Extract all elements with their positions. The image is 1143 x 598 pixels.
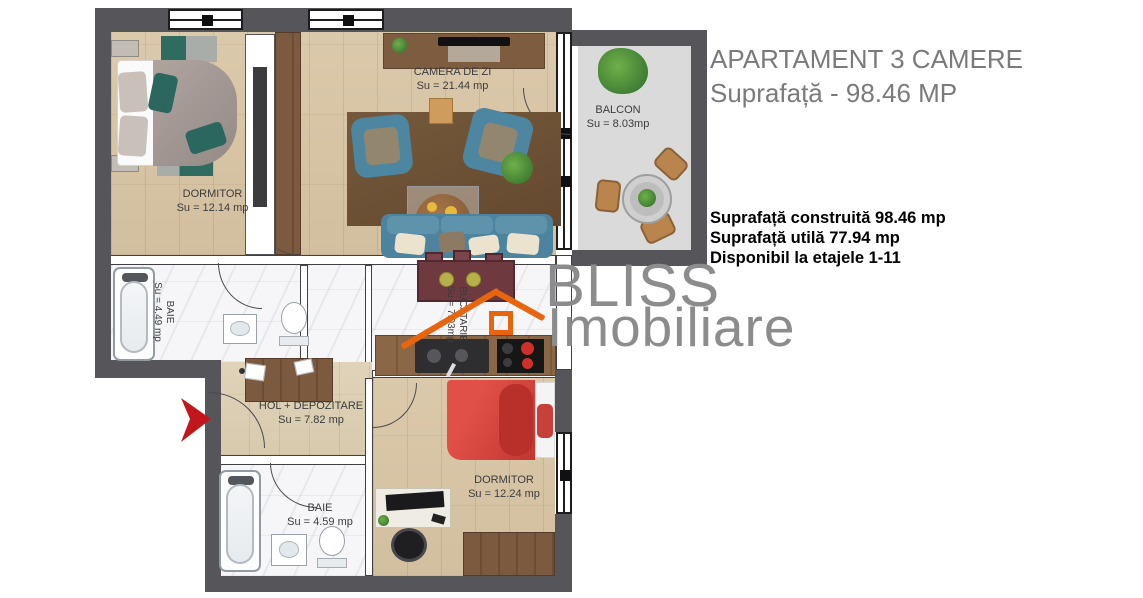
toilet-bowl [281,302,307,334]
listing-subtitle: Suprafață - 98.46 MP [710,76,1023,110]
paper [244,363,266,382]
room-area: Su = 12.24 mp [445,488,563,502]
wall-balcony-right [691,30,707,266]
tub-inner [226,484,254,564]
plant-on-table [638,189,656,207]
window-sash [202,15,213,26]
room-area: Su = 21.44 mp [395,80,510,94]
plant-small [392,38,407,53]
tv-stand [448,46,500,62]
listing-title: APARTAMENT 3 CAMERE [710,42,1023,76]
room-name: CAMERA DE ZI [395,66,510,80]
armchair-cushion [363,126,401,165]
room-label-dormitor2: DORMITOR Su = 12.24 mp [445,474,563,501]
wardrobe-bedroom2 [463,532,555,576]
window-bedroom1 [168,9,243,30]
burner [521,342,534,355]
room-area: Su = 8.03mp [563,118,673,132]
bathtub [113,267,155,361]
wall-right-lower-b [555,514,572,592]
wall-left [95,8,111,378]
room-area: Su = 7.82 mp [247,414,375,428]
bathroom-sink [223,314,257,344]
room-name: HOL + DEPOZITARE [247,400,375,414]
balcony-chair [594,179,621,213]
window-living [308,9,384,30]
window-sash [343,15,354,26]
room-name: BAIE [265,502,375,516]
room-area: Su = 4.59 mp [265,516,375,530]
rug-mat [161,36,217,62]
tv-console [383,33,545,69]
sink-basin [230,321,249,336]
wardrobe-clothes [253,67,267,207]
wall-balcony-top [572,30,707,46]
toilet-tank [317,558,347,568]
room-label-balcon: BALCON Su = 8.03mp [563,104,673,131]
sink-bowl [427,349,441,363]
side-table [429,98,453,124]
entrance-arrow [179,396,213,444]
toilet-bowl [319,526,345,556]
plant-desk [378,515,389,526]
listing-header: APARTAMENT 3 CAMERE Suprafață - 98.46 MP [710,42,1023,110]
corridor-floor [308,265,372,370]
listing-details: Suprafață construită 98.46 mp Suprafață … [710,208,946,268]
bathtub [219,470,261,572]
room-label-baie2: BAIE Su = 4.59 mp [265,502,375,529]
bathroom-sink [271,534,307,566]
small-object [239,368,245,374]
burner [503,358,512,367]
logo-window [489,311,513,335]
room-area: Su = 12.14 mp [155,202,270,216]
toilet-tank [279,336,309,346]
window-bedroom2 [556,432,572,514]
room-label-camera-de-zi: CAMERA DE ZI Su = 21.44 mp [395,66,510,93]
watermark-brand-bottom: Imobiliare [547,300,795,355]
burner [522,358,533,369]
stove [497,339,544,373]
window-sash [560,176,571,187]
burner [502,343,513,354]
room-label-dormitor1: DORMITOR Su = 12.14 mp [155,188,270,215]
room-name: BALCON [563,104,673,118]
room-label-baie1: BAIE Su = 4.49 mp [151,282,175,342]
office-chair [391,528,427,562]
plant-balcony [598,48,648,94]
pillow-red [537,404,553,438]
sofa-cushion [387,216,439,234]
sink-basin [279,541,299,558]
wall-right-lower-a [555,370,572,432]
monitor [386,491,445,511]
room-area: Su = 4.49 mp [151,282,163,342]
room-name: DORMITOR [155,188,270,202]
wall-left-step [95,360,221,378]
room-name: BAIE [163,282,175,342]
armchair [350,113,414,179]
detail-built-area: Suprafață construită 98.46 mp [710,208,946,228]
toilet [277,302,311,348]
plant-living [501,152,533,184]
real-estate-floorplan-page: DORMITOR Su = 12.14 mp CAMERA DE ZI Su =… [0,0,1143,598]
tub-inner [120,281,148,353]
room-name: DORMITOR [445,474,563,488]
toilet [315,524,349,570]
sink-bowl [455,349,468,362]
desk [375,488,451,528]
food-plate [427,202,437,212]
tv-screen [438,37,510,46]
detail-floors: Disponibil la etajele 1-11 [710,248,946,268]
nightstand [111,40,139,57]
wardrobe-bedroom1 [245,34,275,255]
pillow [506,233,540,256]
pillow [118,71,149,113]
wall-bottom [205,576,572,592]
balcony-table [622,174,672,224]
pillow [394,232,426,255]
plate [466,272,481,287]
detail-usable-area: Suprafață utilă 77.94 mp [710,228,946,248]
sofa-cushion [495,216,547,234]
pillow [118,115,149,157]
bed2-duvet-fold [499,384,533,456]
room-label-hol: HOL + DEPOZITARE Su = 7.82 mp [247,400,375,427]
phone [431,513,446,524]
